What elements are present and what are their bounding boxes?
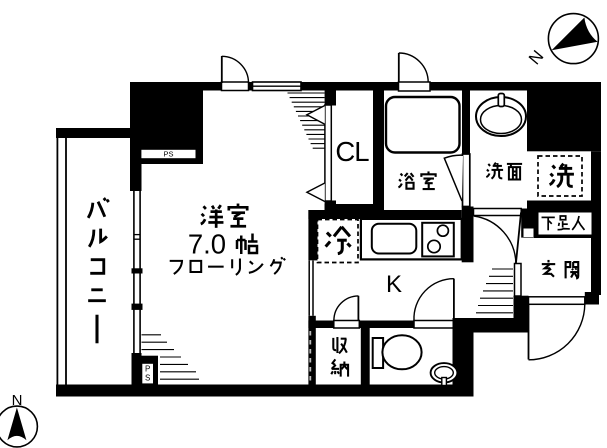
svg-text:S: S [145, 374, 150, 383]
svg-text:K: K [386, 271, 402, 298]
svg-text:P: P [145, 365, 150, 374]
svg-text:7.0: 7.0 [188, 229, 226, 260]
svg-text:CL: CL [335, 136, 369, 167]
svg-text:PS: PS [163, 150, 173, 159]
